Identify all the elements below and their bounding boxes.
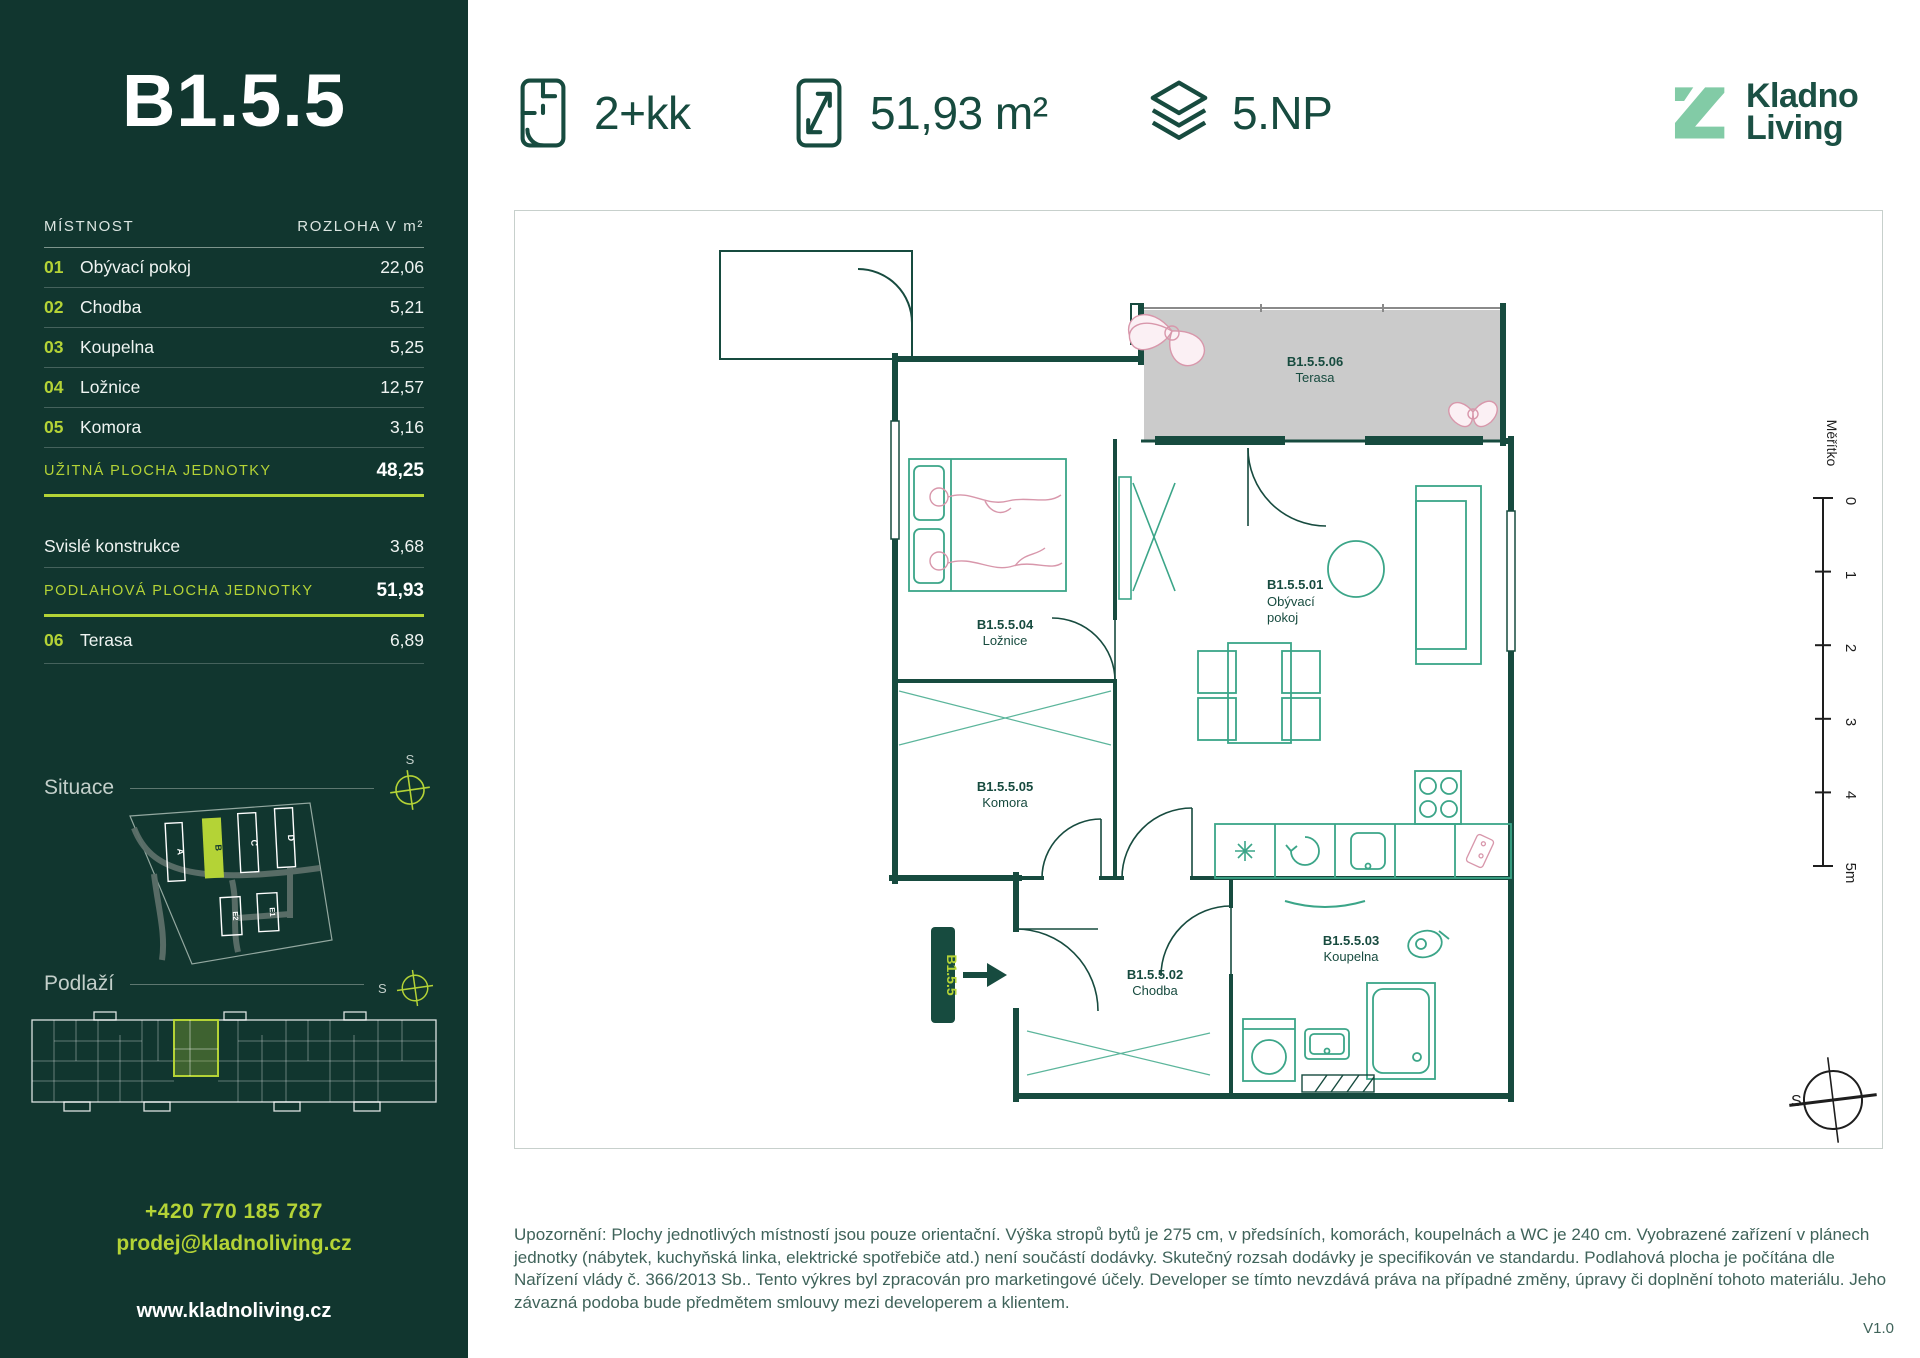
unit-code-title: B1.5.5 xyxy=(0,58,468,143)
compass-icon xyxy=(388,768,432,812)
scale-tick-4: 4 xyxy=(1842,791,1859,799)
bedroom-name: Ložnice xyxy=(983,633,1028,648)
toilet xyxy=(1405,927,1449,961)
email-link[interactable]: prodej@kladnoliving.cz xyxy=(0,1232,468,1256)
brand-logo-text: Kladno Living xyxy=(1746,80,1858,145)
scale-ruler: Měřítko 0 1 2 3 4 5m xyxy=(1813,420,1859,884)
floorplan-panel: B1.5.5.06 Terasa B1.5.5.01 Obývací pokoj… xyxy=(514,210,1883,1149)
storage-code: B1.5.5.05 xyxy=(977,779,1033,794)
terrace-door-sill xyxy=(1155,436,1285,445)
room-table: MÍSTNOST ROZLOHA V m² 01 Obývací pokoj 2… xyxy=(44,218,424,664)
interior-walls xyxy=(895,441,1511,1096)
table-row: 02 Chodba 5,21 xyxy=(44,288,424,328)
scale-title: Měřítko xyxy=(1824,420,1840,467)
living-code: B1.5.5.01 xyxy=(1267,577,1323,592)
terrace-name: Terasa xyxy=(1295,370,1335,385)
window-sill xyxy=(1365,436,1483,445)
disclaimer-text: Upozornění: Plochy jednotlivých místnost… xyxy=(514,1224,1892,1314)
podlazi-compass: S xyxy=(378,968,435,1008)
scale-tick-5: 5m xyxy=(1842,863,1859,884)
living-window xyxy=(1507,511,1515,651)
floor-strip-plan xyxy=(24,1005,444,1145)
bedroom-code: B1.5.5.04 xyxy=(977,617,1034,632)
scale-tick-3: 3 xyxy=(1842,718,1859,726)
cutting-board-decor xyxy=(1466,834,1495,869)
compass-icon xyxy=(395,968,435,1008)
scale-tick-0: 0 xyxy=(1842,497,1859,505)
phone-number[interactable]: +420 770 185 787 xyxy=(0,1200,468,1224)
podlazi-section-label: Podlaží xyxy=(44,972,364,996)
col-area: ROZLOHA V m² xyxy=(297,218,424,235)
table-row: 05 Komora 3,16 xyxy=(44,408,424,448)
living-name-1: Obývací xyxy=(1267,594,1315,609)
floorplan-drawing: B1.5.5.06 Terasa B1.5.5.01 Obývací pokoj… xyxy=(515,211,1882,1148)
room-table-header: MÍSTNOST ROZLOHA V m² xyxy=(44,218,424,248)
floor-area-row: PODLAHOVÁ PLOCHA JEDNOTKY 51,93 xyxy=(44,568,424,617)
rug-circle xyxy=(1328,541,1384,597)
highlighted-unit xyxy=(174,1020,218,1076)
situace-section-label: Situace xyxy=(44,776,374,800)
bed xyxy=(909,459,1066,591)
area-icon xyxy=(790,77,848,149)
kladno-living-logo-icon xyxy=(1664,80,1728,144)
stove xyxy=(1415,771,1461,824)
building-c-label: C xyxy=(249,839,259,847)
hall-name: Chodba xyxy=(1132,983,1178,998)
komora-shelving xyxy=(899,691,1111,745)
website-link[interactable]: www.kladnoliving.cz xyxy=(0,1300,468,1323)
hall-code: B1.5.5.02 xyxy=(1127,967,1183,982)
layout-value: 2+kk xyxy=(594,86,690,140)
bathroom-sink xyxy=(1305,1029,1349,1059)
table-row: 04 Ložnice 12,57 xyxy=(44,368,424,408)
entrance-marker: B1.5.5 xyxy=(931,927,1007,1023)
room-labels: B1.5.5.06 Terasa B1.5.5.01 Obývací pokoj… xyxy=(977,354,1379,998)
living-name-2: pokoj xyxy=(1267,610,1298,625)
towel-rail xyxy=(1285,901,1365,907)
floorplan-icon xyxy=(514,77,572,149)
building-a-label: A xyxy=(175,848,185,856)
hall-wardrobe xyxy=(1027,1031,1210,1075)
kitchen-star-symbol xyxy=(1235,841,1255,861)
dining-set xyxy=(1198,643,1320,743)
plan-compass-label: S xyxy=(1791,1093,1802,1110)
brand-logo[interactable]: Kladno Living xyxy=(1664,80,1858,145)
divider xyxy=(130,788,374,789)
door-mat-hatch xyxy=(1302,1075,1374,1092)
bathroom-code: B1.5.5.03 xyxy=(1323,933,1379,948)
entrance-badge-label: B1.5.5 xyxy=(944,954,960,995)
contact-block: +420 770 185 787 prodej@kladnoliving.cz … xyxy=(0,1200,468,1323)
site-roads xyxy=(134,828,320,960)
layout-spec: 2+kk xyxy=(514,78,690,148)
divider xyxy=(130,984,364,985)
washing-machine xyxy=(1243,1019,1295,1081)
situace-compass: S xyxy=(388,752,432,817)
col-room: MÍSTNOST xyxy=(44,218,134,235)
scale-tick-2: 2 xyxy=(1842,644,1859,652)
sidebar: B1.5.5 MÍSTNOST ROZLOHA V m² 01 Obývací … xyxy=(0,0,468,1358)
terrace-row: 06 Terasa 6,89 xyxy=(44,617,424,664)
table-row: 01 Obývací pokoj 22,06 xyxy=(44,248,424,288)
version-label: V1.0 xyxy=(1863,1320,1894,1337)
tv-sideboard xyxy=(1119,477,1175,599)
plan-compass: S xyxy=(1784,1052,1882,1148)
bed-figures-decor xyxy=(930,488,1062,570)
vestibule-walls xyxy=(720,251,1141,359)
building-e2-label: E2 xyxy=(231,911,240,921)
table-row: 03 Koupelna 5,25 xyxy=(44,328,424,368)
building-e1-label: E1 xyxy=(268,907,277,917)
area-spec: 51,93 m² xyxy=(790,78,1048,148)
building-d-label: D xyxy=(286,834,296,842)
building-b-label: B xyxy=(213,844,223,852)
layers-icon xyxy=(1148,80,1210,146)
usable-area-row: UŽITNÁ PLOCHA JEDNOTKY 48,25 xyxy=(44,448,424,497)
floor-spec: 5.NP xyxy=(1148,78,1332,148)
storage-name: Komora xyxy=(982,795,1028,810)
bathroom-name: Koupelna xyxy=(1324,949,1380,964)
sofa xyxy=(1416,486,1481,664)
site-map: A B C D E2 E1 xyxy=(112,798,357,976)
construction-row: Svislé konstrukce 3,68 xyxy=(44,525,424,568)
shower xyxy=(1367,983,1435,1079)
area-value: 51,93 m² xyxy=(870,86,1048,140)
terrace-code: B1.5.5.06 xyxy=(1287,354,1343,369)
doors xyxy=(1016,448,1326,1011)
scale-tick-1: 1 xyxy=(1842,571,1859,579)
bedroom-window xyxy=(891,421,899,539)
kitchen-counter xyxy=(1215,824,1511,878)
floor-value: 5.NP xyxy=(1232,86,1332,140)
